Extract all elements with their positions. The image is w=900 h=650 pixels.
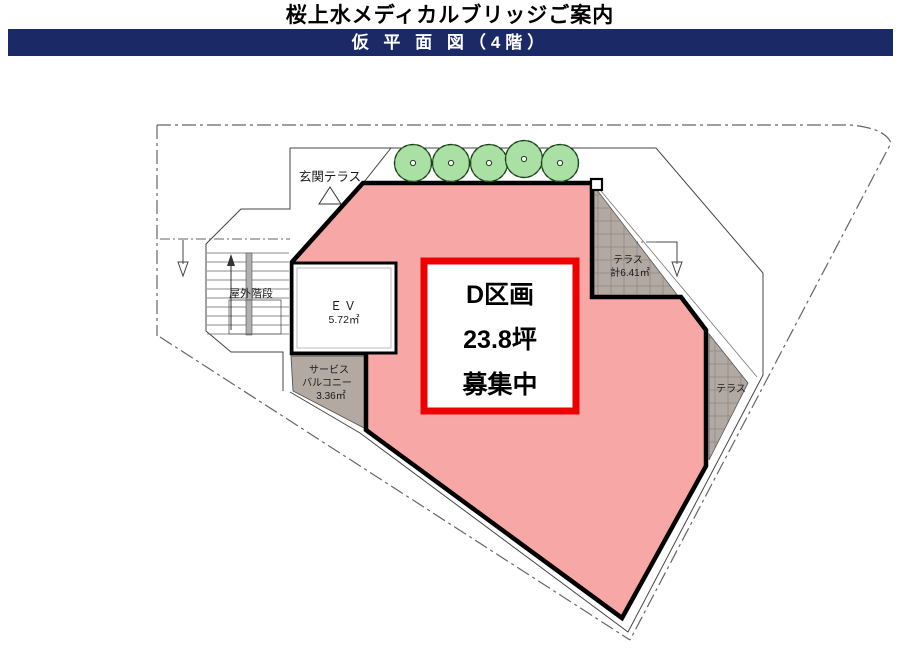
elevator-area-label: 5.72㎡ (329, 314, 360, 326)
unit-name: D区画 (466, 281, 534, 309)
up-arrow-icon (227, 254, 235, 266)
svg-text:3.36㎡: 3.36㎡ (316, 390, 345, 402)
svg-text:サービス: サービス (309, 364, 349, 376)
outdoor-stairs (206, 148, 290, 391)
level-marker-triangle (319, 187, 341, 204)
tree-icon (506, 141, 543, 178)
terrace-upper (594, 186, 678, 296)
tree-icon (395, 145, 432, 182)
tree-row (395, 141, 579, 182)
down-arrow-icon (178, 262, 188, 276)
tree-icon (433, 145, 470, 182)
elevator-room: ＥＶ 5.72㎡ (292, 263, 396, 353)
flyer-page: 桜上水メディカルブリッジご案内 仮 平 面 図（4階） (0, 0, 900, 650)
terrace-lower-label: テラス (716, 383, 746, 395)
floor-plan: ＥＶ 5.72㎡ 玄関テラス 屋外階段 サービス バルコニー 3.36㎡ テラス… (0, 0, 900, 650)
svg-text:計6.41㎡: 計6.41㎡ (610, 266, 649, 279)
unit-status: 募集中 (461, 370, 537, 399)
unit-size: 23.8坪 (463, 326, 537, 354)
svg-text:バルコニー: バルコニー (302, 377, 352, 389)
tree-icon (542, 145, 579, 182)
stairs-label: 屋外階段 (229, 286, 273, 300)
down-arrow-icon (672, 262, 682, 276)
section-marker-left (160, 239, 290, 276)
svg-text:テラス: テラス (613, 254, 643, 266)
tree-icon (471, 145, 508, 182)
entrance-terrace-label: 玄関テラス (299, 169, 361, 184)
elevator-label: ＥＶ (330, 299, 358, 313)
unit-info-box: D区画 23.8坪 募集中 (424, 261, 576, 411)
column-marker (591, 179, 602, 190)
